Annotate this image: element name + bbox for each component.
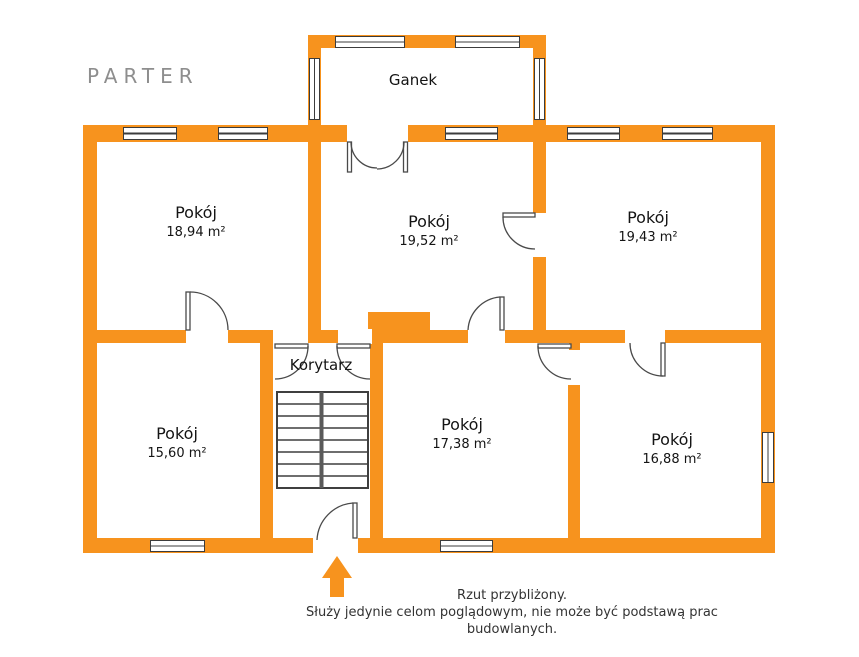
room-area: 16,88 m² xyxy=(642,451,701,469)
room-area: 15,60 m² xyxy=(147,445,206,463)
french-door xyxy=(348,142,408,172)
room-area: 19,52 m² xyxy=(399,233,458,251)
room-name: Pokój xyxy=(432,414,491,436)
door-room6-room7 xyxy=(538,344,571,379)
room-label-pokoj-5: Pokój 17,38 m² xyxy=(432,414,491,453)
door-room1-room5 xyxy=(186,292,228,330)
disclaimer: Rzut przybliżony. Służy jedynie celom po… xyxy=(272,587,752,638)
room-name: Pokój xyxy=(399,211,458,233)
room-name: Pokój xyxy=(166,202,225,224)
room-label-pokoj-3: Pokój 19,43 m² xyxy=(618,207,677,246)
room-label-pokoj-2: Pokój 19,52 m² xyxy=(399,211,458,250)
room-name: Pokój xyxy=(618,207,677,229)
room-name: Korytarz xyxy=(290,355,352,375)
disclaimer-line1: Rzut przybliżony. xyxy=(272,587,752,604)
room-area: 18,94 m² xyxy=(166,224,225,242)
room-label-pokoj-1: Pokój 18,94 m² xyxy=(166,202,225,241)
floor-plan: PARTER xyxy=(0,0,859,657)
room-name: Ganek xyxy=(389,70,437,90)
doors-stairs-overlay xyxy=(0,0,859,657)
room-label-pokoj-4: Pokój 15,60 m² xyxy=(147,423,206,462)
door-room3-room7 xyxy=(630,343,665,376)
room-label-korytarz: Korytarz xyxy=(290,355,352,375)
room-area: 19,43 m² xyxy=(618,229,677,247)
door-entrance xyxy=(317,503,357,540)
door-room2-room3 xyxy=(503,213,535,249)
disclaimer-line2: Służy jedynie celom poglądowym, nie może… xyxy=(272,604,752,638)
door-room2-room6 xyxy=(468,297,504,330)
room-area: 17,38 m² xyxy=(432,436,491,454)
room-label-pokoj-6: Pokój 16,88 m² xyxy=(642,429,701,468)
room-label-ganek: Ganek xyxy=(389,70,437,90)
room-name: Pokój xyxy=(642,429,701,451)
stairs xyxy=(277,392,368,488)
room-name: Pokój xyxy=(147,423,206,445)
